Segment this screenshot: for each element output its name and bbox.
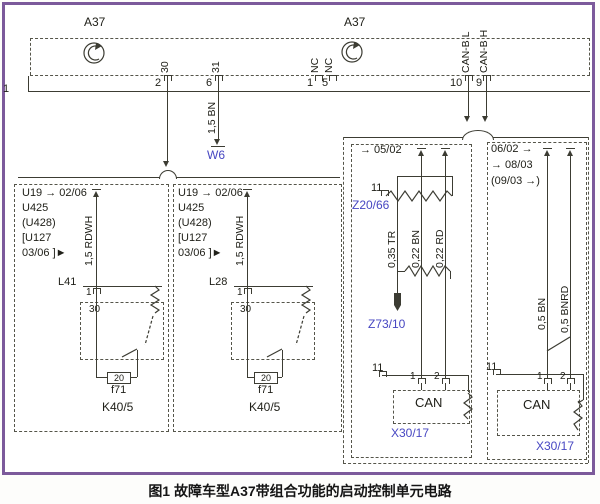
pin1-nc-label: NC (310, 58, 321, 73)
a37-label-left: A37 (84, 16, 105, 29)
module1-unit-name: K40/5 (102, 401, 133, 414)
pin6-terminal-label: 31 (211, 61, 222, 73)
wire-pin2-arrow-icon (163, 161, 169, 167)
module1-cont-bar-icon (92, 189, 101, 190)
pin10-canbl-label: CAN-B L (461, 32, 472, 73)
a37-box-left (30, 38, 31, 75)
a37-box-top (30, 38, 590, 39)
wire-pin2 (167, 76, 168, 161)
module1-fuse-lead-left (96, 377, 107, 378)
right-group-left-edge (343, 137, 344, 463)
module2-relay-pin-icon (244, 288, 252, 294)
module1-wire (96, 197, 97, 286)
block-a-can-pin1: 1 (410, 372, 416, 383)
module1-relay-pin: 1 (86, 288, 92, 299)
module2-relay-box (231, 302, 315, 360)
module2-code5: 03/06 ]► (178, 248, 223, 260)
block-b-can-pin2: 2 (560, 372, 566, 383)
pin5-connector-icon (329, 75, 337, 81)
pin1-number: 1 (307, 78, 313, 90)
block-a-wire3-gauge: 0,22 RD (435, 229, 446, 268)
module1-code3: (U428) (22, 218, 56, 230)
block-b-wire-bnrd (570, 156, 571, 379)
module1-contact-wire (96, 287, 97, 377)
block-b-can-pin1: 1 (537, 372, 543, 383)
block-a-plug-name: X30/17 (391, 427, 429, 440)
right-group-right-edge (588, 137, 589, 463)
module1-code2: U425 (22, 203, 48, 215)
a37-label-right: A37 (344, 16, 365, 29)
right-group-bottom-edge (343, 463, 588, 464)
block-b-bus-label: CAN (523, 398, 550, 412)
block-b-wire-bn (547, 156, 548, 379)
block-a-can-stub2 (445, 383, 446, 390)
module2-relay-label: L28 (209, 277, 227, 289)
block-b-can-stub1 (547, 383, 548, 390)
block-b-can-pin2-icon (567, 378, 575, 384)
module1-relay-pin-icon (93, 288, 101, 294)
module1-fuse: 20 (107, 372, 131, 384)
module1-relay-box (80, 302, 164, 360)
block-b-cont-bar1-icon (543, 148, 552, 149)
module1-fuse-name: f71 (111, 385, 126, 397)
module2-code4: [U127 (178, 233, 207, 245)
block-a-wire2-gauge: 0,22 BN (411, 230, 422, 268)
block-a-cont-bar2-icon (441, 148, 450, 149)
wire-pin9-canh (486, 76, 487, 116)
module1-code4: [U127 (22, 233, 51, 245)
rail-line (28, 91, 590, 92)
module2-code3: (U428) (178, 218, 212, 230)
ground-point-label: W6 (207, 149, 225, 162)
pin2-number: 2 (155, 78, 161, 90)
a37-box-right (589, 38, 590, 75)
pin5-number: 5 (322, 78, 328, 90)
block-b-date3: (09/03 →) (491, 176, 540, 188)
block-b-cont-bar2-icon (566, 148, 575, 149)
module1-switch-stub (137, 350, 138, 377)
block-b-wire2-gauge: 0,5 BNRD (560, 286, 571, 333)
module2-wire (247, 197, 248, 286)
pin6-number: 6 (206, 78, 212, 90)
rail-riser (28, 76, 29, 91)
a37-box-bottom (30, 75, 590, 76)
pin10-connector-icon (465, 75, 473, 81)
block-a-shield-line (382, 375, 468, 376)
block-a-date: → 05/02 (360, 145, 402, 157)
block-b-can-pin1-icon (544, 378, 552, 384)
block-b-plug-name: X30/17 (536, 440, 574, 453)
block-a-can-pin2: 2 (434, 372, 440, 383)
pin2-terminal-label: 30 (160, 61, 171, 73)
pin9-number: 9 (476, 78, 482, 90)
module2-unit-name: K40/5 (249, 401, 280, 414)
module1-relay-label: L41 (58, 277, 76, 289)
block-b-date1: 06/02 → (491, 144, 533, 156)
block-a-splice-loop-right (452, 176, 453, 196)
pin5-nc-label: NC (324, 58, 335, 73)
module1-code1: U19 → 02/06 (22, 188, 87, 200)
block-a-splice-loop-top (397, 176, 452, 177)
module2-wire-gauge: 1,5 RDWH (235, 216, 246, 266)
block-a-bus-label: CAN (415, 396, 442, 410)
block-a-can-pin2-icon (442, 378, 450, 384)
module1-wire-gauge: 1,5 RDWH (84, 216, 95, 266)
wire-pin6-ground (218, 76, 219, 139)
block-b-shield-drop (583, 374, 584, 400)
pin10-number: 10 (450, 78, 462, 90)
wire-pin10-arrow-icon (464, 116, 470, 122)
module2-code2: U425 (178, 203, 204, 215)
block-a-can-stub1 (421, 383, 422, 390)
figure-caption: 图1 故障车型A37带组合功能的启动控制单元电路 (0, 481, 600, 501)
block-a-cont-bar1-icon (417, 148, 426, 149)
module2-fuse-lead-left (247, 377, 254, 378)
wire-pin6-gauge: 1,5 BN (207, 102, 218, 134)
pin9-canbh-label: CAN-B H (479, 30, 490, 73)
block-a-can-pin1-icon (418, 378, 426, 384)
module2-fuse-name: f71 (258, 385, 273, 397)
block-a-connector-name: Z73/10 (368, 318, 405, 331)
ground-arrow-icon (214, 139, 220, 145)
pin6-connector-icon (215, 75, 223, 81)
block-a-splice-pin-icon (381, 190, 389, 196)
pin2-connector-icon (164, 75, 172, 81)
block-b-date2: → 08/03 (491, 160, 533, 172)
block-a-splice-name: Z20/66 (352, 199, 389, 212)
pin9-connector-icon (483, 75, 491, 81)
block-b-wire1-gauge: 0,5 BN (537, 298, 548, 330)
module2-cont-bar-icon (243, 189, 252, 190)
module2-relay-pin: 1 (237, 288, 243, 299)
module2-fuse: 20 (254, 372, 278, 384)
wire-pin10-canl (468, 76, 469, 116)
block-a-z73-lead (398, 271, 405, 272)
left-group-feed-line (18, 177, 340, 178)
module1-relay-topbar (83, 286, 162, 287)
module1-code5: 03/06 ]► (22, 248, 67, 260)
wire-pin9-arrow-icon (482, 116, 488, 122)
block-a-z73-stub (450, 271, 451, 279)
module2-relay-topbar (234, 286, 313, 287)
ground-bar-icon (211, 146, 225, 147)
block-a-shield-pin-icon (379, 371, 387, 377)
wiring-diagram-figure: A37 A37 1 2 30 6 31 1 NC 5 NC 10 CAN-B L… (0, 0, 600, 504)
module2-switch-stub (282, 350, 283, 377)
block-b-can-stub2 (570, 383, 571, 390)
module2-code1: U19 → 02/06 (178, 188, 243, 200)
block-a-wire1-gauge: 0,35 TR (387, 231, 398, 268)
rail-number: 1 (3, 84, 9, 96)
module2-contact-wire (247, 287, 248, 377)
